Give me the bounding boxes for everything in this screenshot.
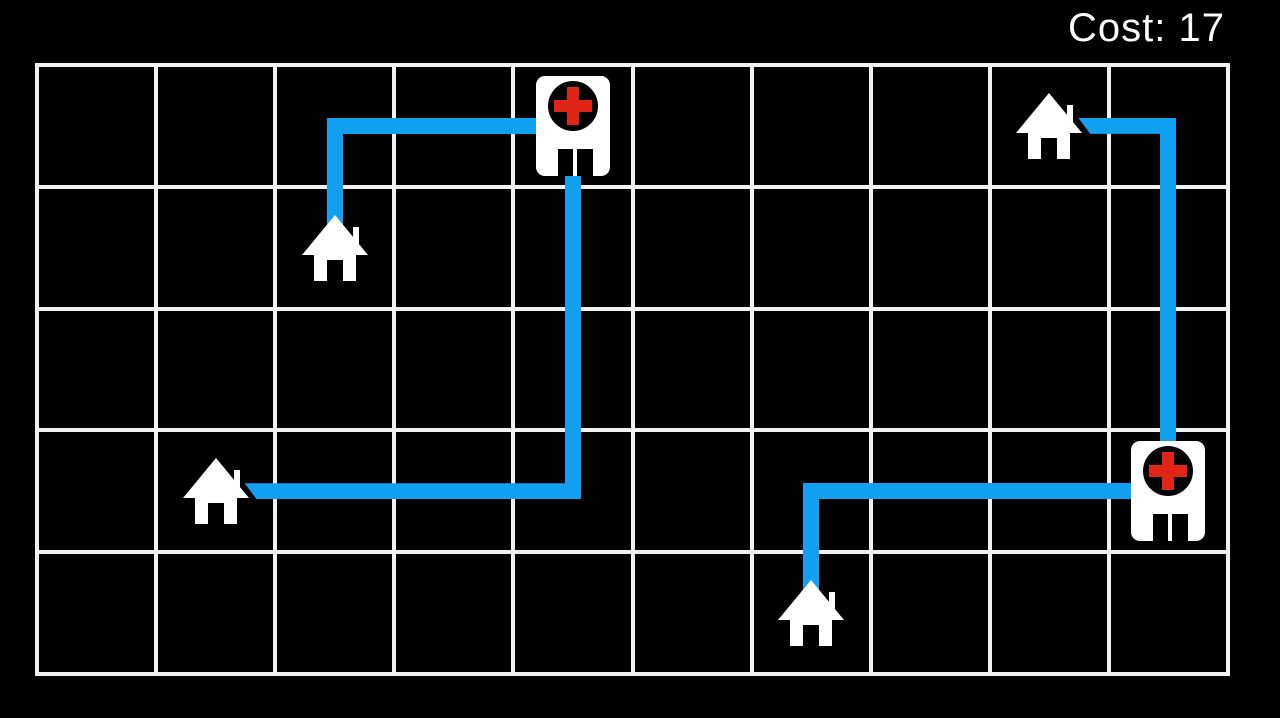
route-1-segment-1[interactable] — [327, 118, 536, 134]
grid-line-horizontal — [35, 185, 1230, 189]
grid-line-vertical — [511, 63, 515, 676]
grid-line-vertical — [392, 63, 396, 676]
route-2-segment-0[interactable] — [565, 176, 581, 499]
grid-line-vertical — [1107, 63, 1111, 676]
hospital-door-left — [558, 149, 573, 176]
house-4[interactable] — [778, 580, 844, 646]
door — [803, 625, 819, 646]
grid-line-horizontal — [35, 428, 1230, 432]
route-4-segment-0[interactable] — [803, 483, 1131, 499]
hospital-1[interactable] — [536, 76, 610, 176]
door — [1041, 138, 1057, 159]
grid-line-horizontal — [35, 672, 1230, 676]
door — [327, 260, 343, 281]
grid-line-vertical — [988, 63, 992, 676]
house-1[interactable] — [302, 215, 368, 281]
grid-line-horizontal — [35, 307, 1230, 311]
hospital-icon — [1131, 441, 1205, 541]
grid-line-horizontal — [35, 63, 1230, 67]
house-icon — [1016, 93, 1082, 159]
route-3-segment-1[interactable] — [1160, 118, 1176, 441]
door — [208, 503, 224, 524]
game-screen: Cost: 17 — [0, 0, 1280, 718]
grid-line-vertical — [750, 63, 754, 676]
route-2-segment-1[interactable] — [245, 483, 581, 499]
hospital-2[interactable] — [1131, 441, 1205, 541]
hospital-door-left — [1153, 514, 1168, 541]
grid-line-vertical — [273, 63, 277, 676]
grid-line-vertical — [1226, 63, 1230, 676]
house-3[interactable] — [1016, 93, 1082, 159]
hospital-door-right — [577, 149, 593, 176]
hospital-icon — [536, 76, 610, 176]
grid-line-vertical — [35, 63, 39, 676]
route-4-segment-1[interactable] — [803, 483, 819, 594]
game-board[interactable] — [0, 0, 1280, 718]
route-1-segment-0[interactable] — [327, 118, 343, 229]
grid-line-vertical — [154, 63, 158, 676]
house-icon — [183, 458, 249, 524]
grid-line-horizontal — [35, 550, 1230, 554]
grid-line-vertical — [869, 63, 873, 676]
house-icon — [302, 215, 368, 281]
grid-line-vertical — [631, 63, 635, 676]
house-icon — [778, 580, 844, 646]
hospital-door-right — [1172, 514, 1188, 541]
house-2[interactable] — [183, 458, 249, 524]
